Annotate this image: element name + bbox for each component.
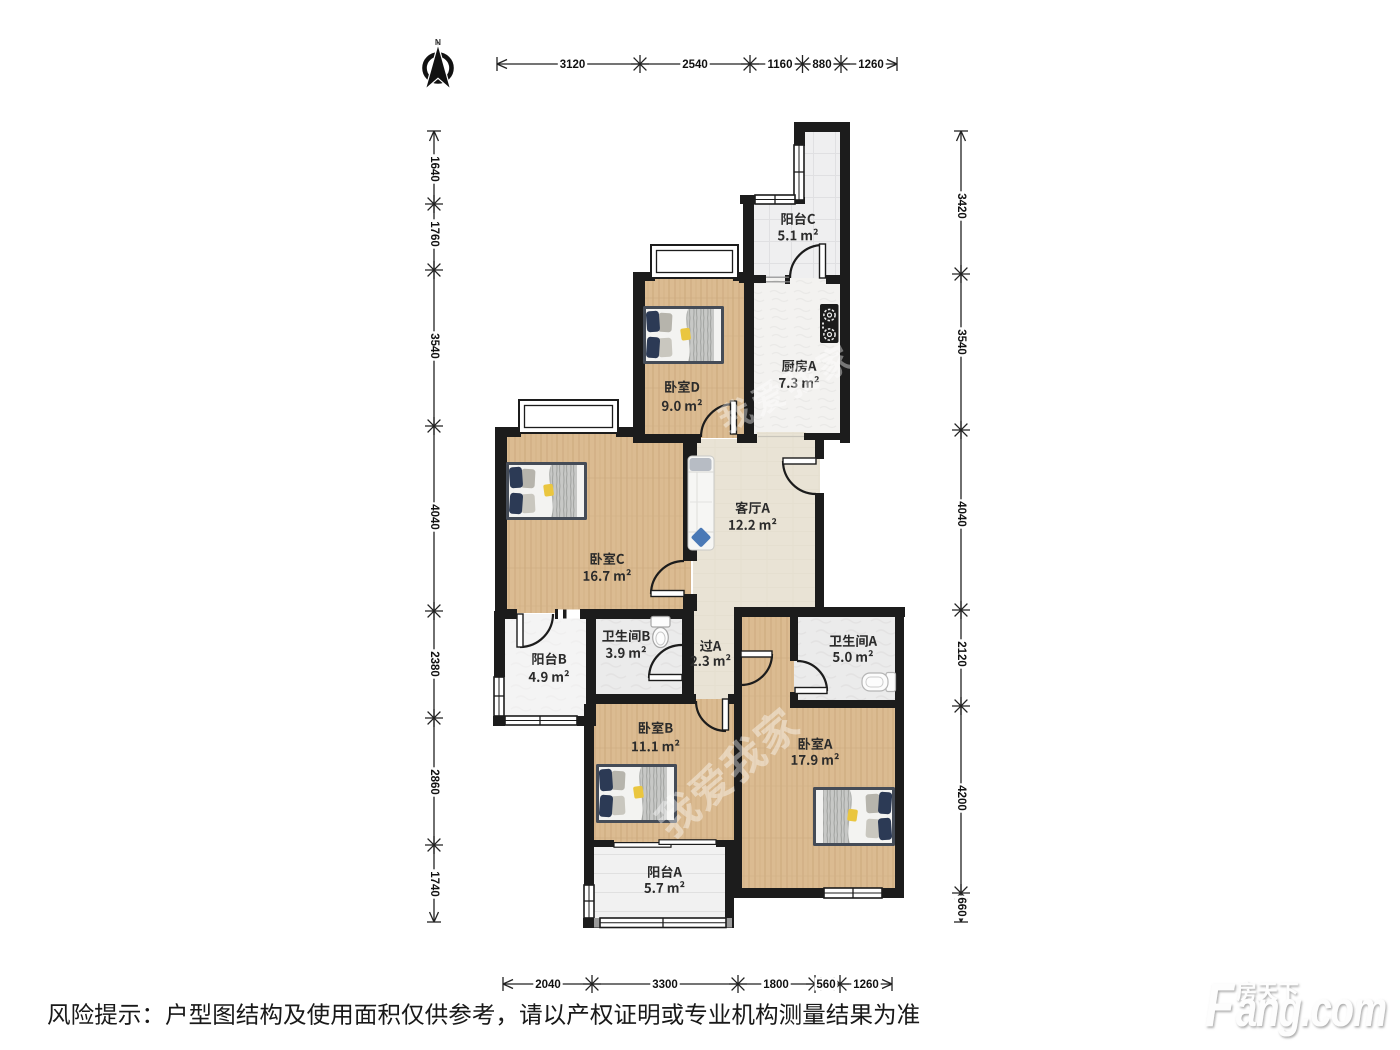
svg-text:3300: 3300 bbox=[652, 979, 678, 991]
svg-text:880: 880 bbox=[812, 59, 831, 71]
svg-text:1640: 1640 bbox=[428, 156, 440, 182]
svg-text:2120: 2120 bbox=[955, 641, 967, 667]
svg-text:1260: 1260 bbox=[858, 59, 884, 71]
svg-text:1260: 1260 bbox=[853, 979, 879, 991]
svg-text:3540: 3540 bbox=[428, 333, 440, 359]
svg-text:3120: 3120 bbox=[560, 59, 586, 71]
svg-text:3540: 3540 bbox=[955, 329, 967, 355]
svg-text:660: 660 bbox=[955, 897, 967, 916]
svg-text:2860: 2860 bbox=[428, 769, 440, 795]
svg-text:2380: 2380 bbox=[428, 651, 440, 677]
svg-text:560: 560 bbox=[816, 979, 835, 991]
svg-text:4200: 4200 bbox=[955, 785, 967, 811]
svg-text:4040: 4040 bbox=[955, 501, 967, 527]
svg-text:1740: 1740 bbox=[428, 871, 440, 897]
svg-text:2540: 2540 bbox=[682, 59, 708, 71]
svg-text:ang.com: ang.com bbox=[1236, 982, 1386, 1037]
svg-text:2040: 2040 bbox=[535, 979, 561, 991]
svg-text:1760: 1760 bbox=[428, 221, 440, 247]
svg-text:1800: 1800 bbox=[763, 979, 789, 991]
svg-text:F: F bbox=[1205, 970, 1235, 1039]
svg-text:3420: 3420 bbox=[955, 193, 967, 219]
svg-text:1160: 1160 bbox=[768, 59, 793, 71]
svg-text:4040: 4040 bbox=[428, 504, 440, 530]
